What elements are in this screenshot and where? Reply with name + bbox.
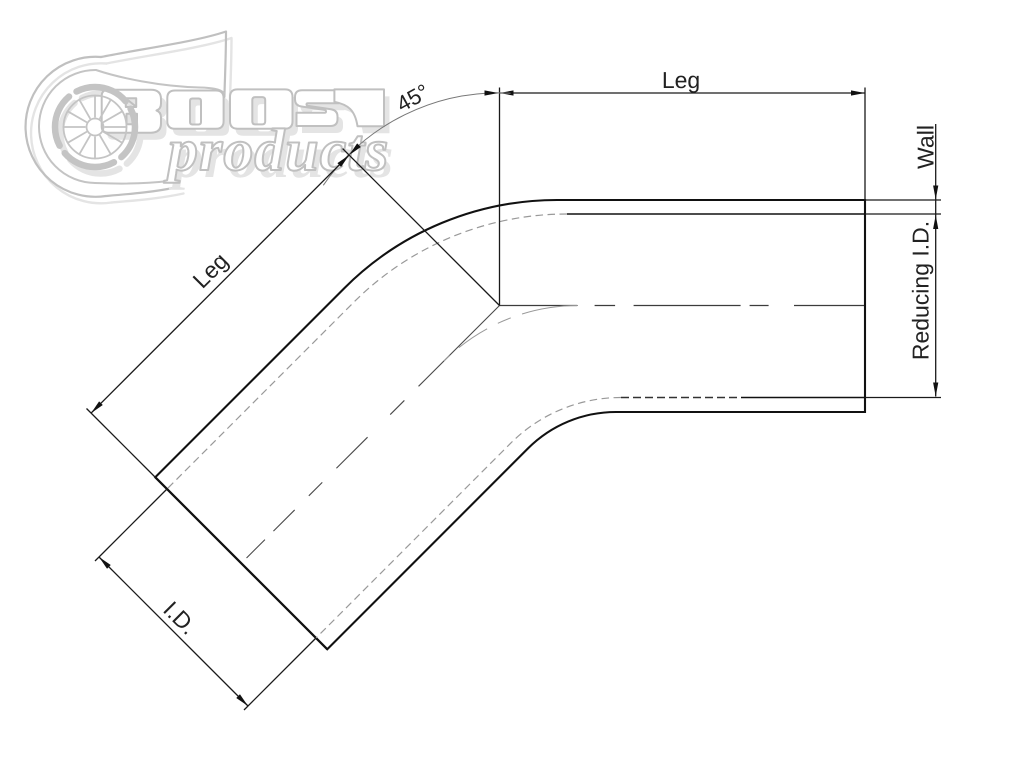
svg-text:Leg: Leg	[662, 67, 700, 93]
svg-text:Wall: Wall	[913, 125, 939, 169]
svg-text:45°: 45°	[392, 79, 433, 117]
svg-text:Reducing I.D.: Reducing I.D.	[908, 221, 934, 360]
svg-text:Leg: Leg	[188, 248, 234, 294]
svg-text:I.D.: I.D.	[158, 596, 202, 640]
